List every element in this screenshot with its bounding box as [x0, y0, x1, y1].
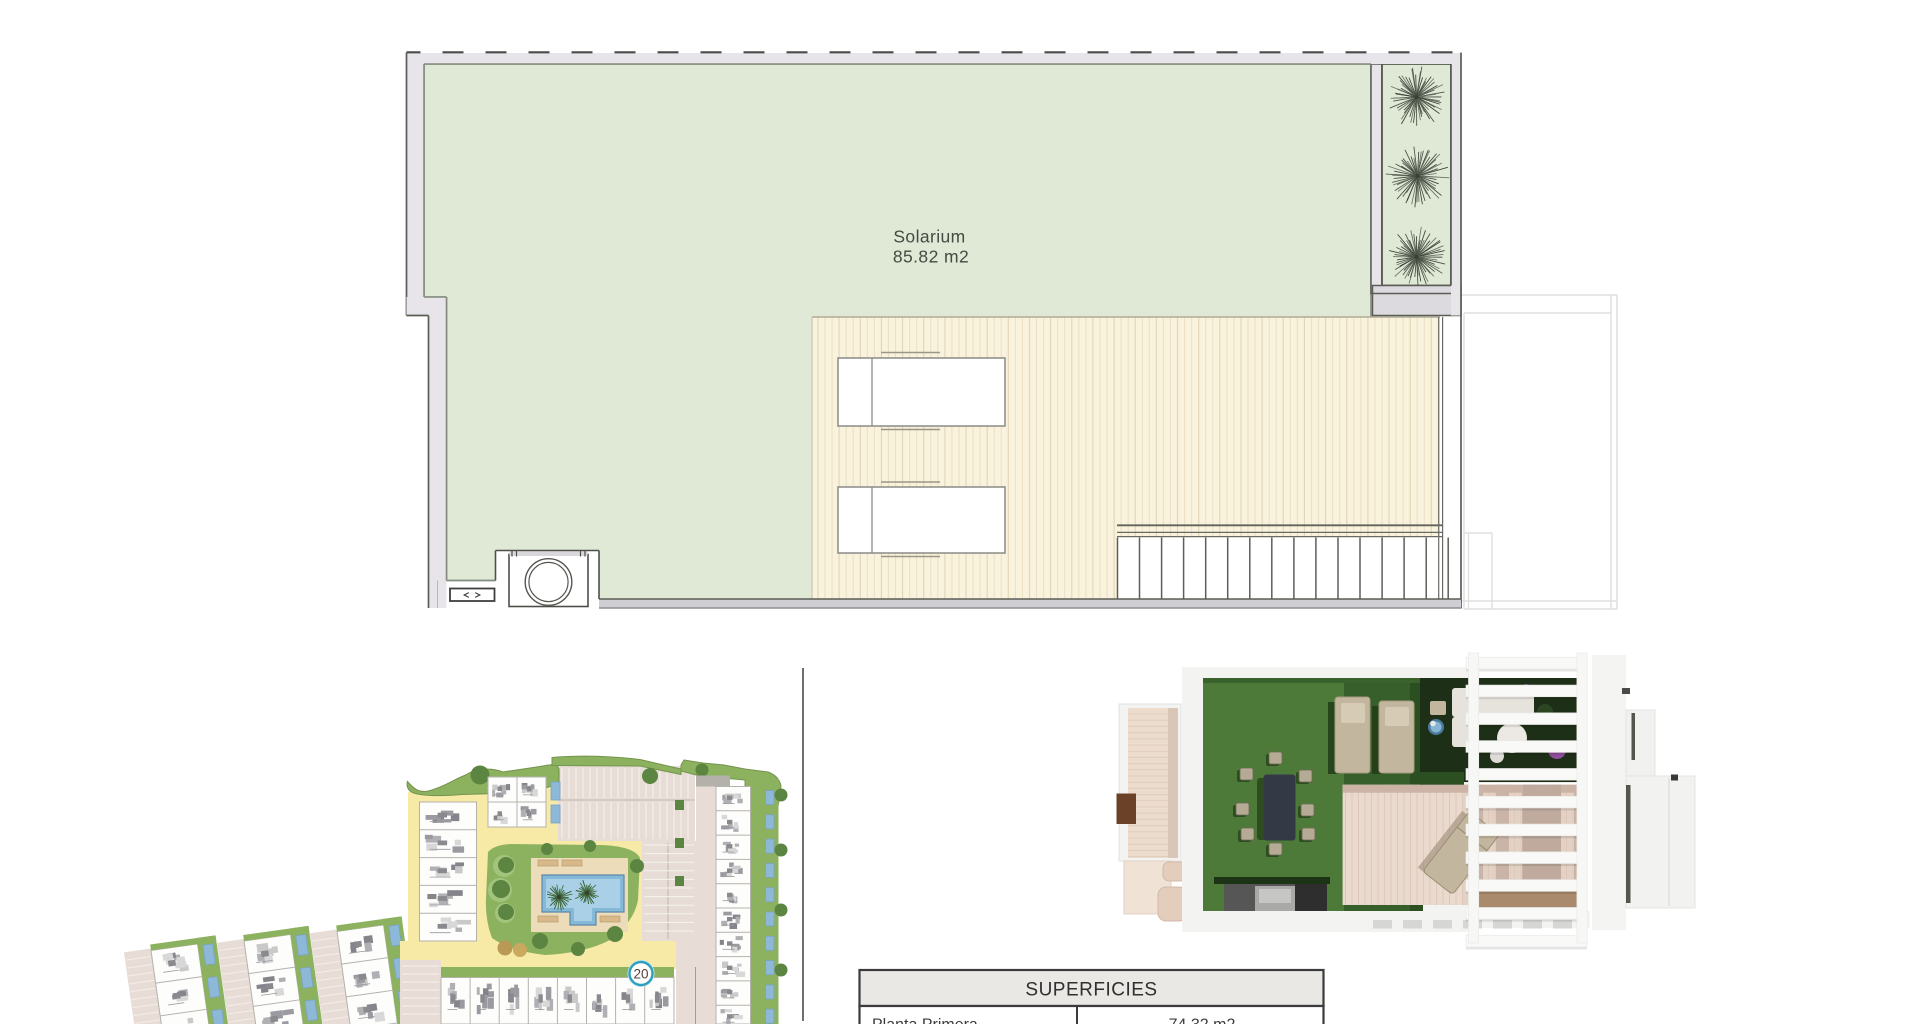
- svg-text:SUPERFICIES: SUPERFICIES: [1025, 980, 1157, 1001]
- svg-text:Solarium: Solarium: [893, 227, 965, 247]
- svg-text:85.82 m2: 85.82 m2: [893, 247, 969, 267]
- svg-text:20: 20: [633, 967, 648, 982]
- svg-text:74.32 m2: 74.32 m2: [1169, 1017, 1236, 1024]
- svg-text:Planta Primera: Planta Primera: [872, 1017, 978, 1024]
